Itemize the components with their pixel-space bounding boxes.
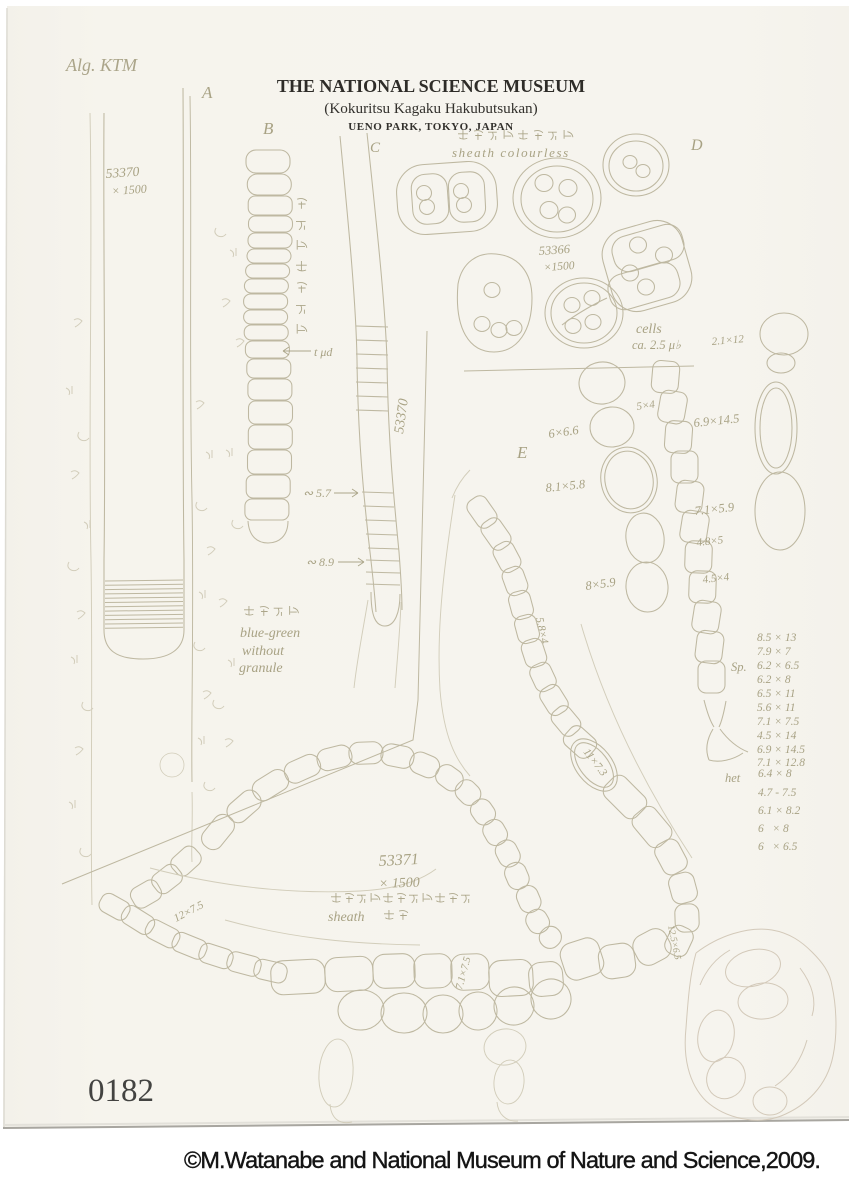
svg-text:53371: 53371	[378, 851, 419, 870]
svg-text:53370: 53370	[105, 164, 140, 181]
svg-text:granule: granule	[239, 661, 283, 676]
svg-text:©M.Watanabe and National Museu: ©M.Watanabe and National Museum of Natur…	[184, 1147, 820, 1173]
svg-text:B: B	[263, 119, 274, 138]
svg-text:6.2 × 8: 6.2 × 8	[757, 674, 791, 686]
svg-text:Sp.: Sp.	[731, 660, 747, 674]
svg-text:∾ 8.9: ∾ 8.9	[306, 555, 334, 569]
svg-text:6.2 × 6.5: 6.2 × 6.5	[757, 660, 800, 672]
svg-text:A: A	[201, 83, 213, 102]
svg-text:4.7 - 7.5: 4.7 - 7.5	[758, 787, 797, 799]
svg-text:× 1500: × 1500	[111, 182, 147, 198]
svg-text:without: without	[242, 644, 285, 659]
svg-text:6 × 6.5: 6 × 6.5	[758, 841, 798, 853]
svg-text:ca. 2.5 μ♭: ca. 2.5 μ♭	[632, 338, 681, 352]
svg-text:4.5 × 14: 4.5 × 14	[757, 730, 797, 742]
svg-text:cells: cells	[636, 322, 662, 337]
svg-text:het: het	[725, 771, 741, 785]
svg-text:(Kokuritsu Kagaku Hakubutsukan: (Kokuritsu Kagaku Hakubutsukan)	[324, 100, 537, 117]
svg-text:5.6 × 11: 5.6 × 11	[757, 702, 796, 714]
svg-text:7.1 × 7.5: 7.1 × 7.5	[757, 716, 800, 728]
svg-text:sheath: sheath	[328, 910, 365, 925]
svg-text:6.4 × 8: 6.4 × 8	[758, 768, 792, 780]
svg-text:6.1 × 8.2: 6.1 × 8.2	[758, 805, 801, 817]
svg-text:6.5 × 11: 6.5 × 11	[757, 688, 796, 700]
svg-text:THE NATIONAL SCIENCE MUSEUM: THE NATIONAL SCIENCE MUSEUM	[277, 76, 585, 96]
svg-text:8.5 × 13: 8.5 × 13	[757, 632, 797, 644]
svg-text:×1500: ×1500	[543, 260, 575, 274]
svg-text:6 × 8: 6 × 8	[758, 823, 789, 835]
svg-text:blue-green: blue-green	[240, 626, 300, 641]
svg-text:Alg. KTM: Alg. KTM	[65, 55, 138, 75]
svg-text:UENO PARK, TOKYO, JAPAN: UENO PARK, TOKYO, JAPAN	[348, 121, 513, 133]
svg-text:53366: 53366	[538, 242, 571, 258]
svg-text:7.9 × 7: 7.9 × 7	[757, 646, 792, 658]
svg-text:6.9 × 14.5: 6.9 × 14.5	[757, 744, 805, 756]
svg-text:∾ 5.7: ∾ 5.7	[303, 486, 332, 500]
svg-text:C: C	[370, 140, 381, 156]
svg-text:D: D	[690, 137, 703, 154]
svg-text:E: E	[516, 443, 528, 462]
svg-text:× 1500: × 1500	[379, 876, 420, 892]
svg-text:0182: 0182	[88, 1073, 154, 1109]
svg-text:sheath colourless: sheath colourless	[452, 145, 570, 160]
svg-text:t μd: t μd	[314, 345, 333, 359]
